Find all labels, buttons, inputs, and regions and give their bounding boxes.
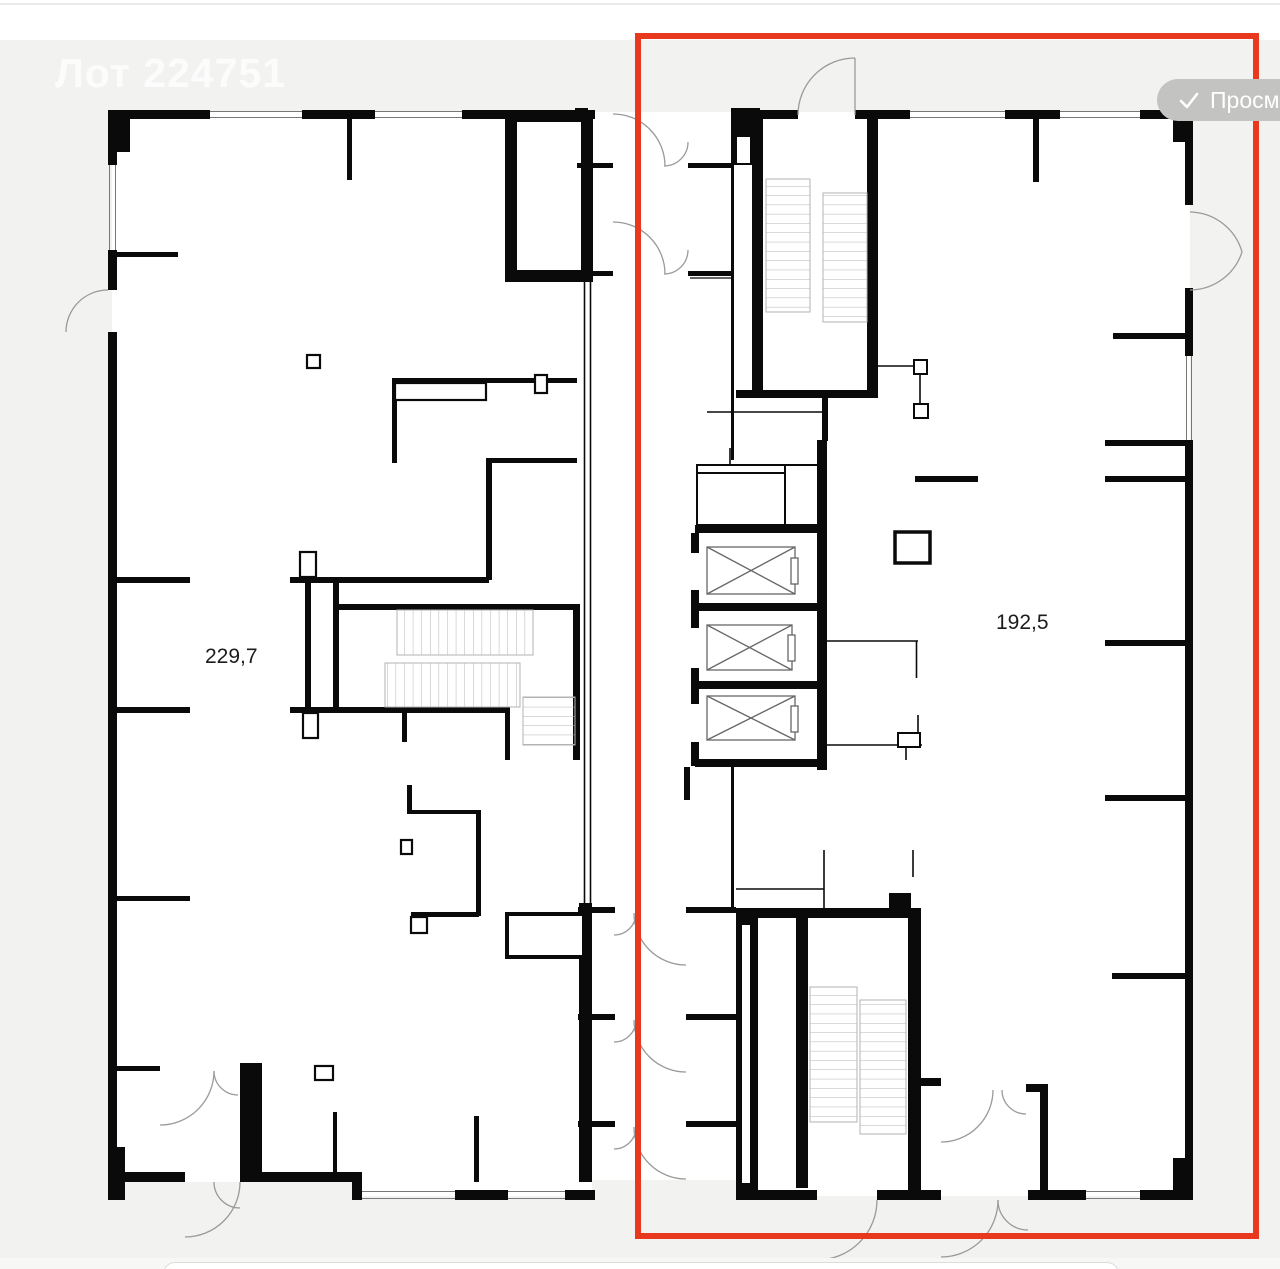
next-card-edge[interactable] xyxy=(163,1262,1119,1269)
checkmark-icon xyxy=(1177,88,1201,112)
viewed-badge-label: Просмотрено xyxy=(1210,87,1280,114)
lot-watermark: Лот 224751 xyxy=(55,50,286,97)
left-unit-area-label: 229,7 xyxy=(205,645,258,668)
right-unit-area-label: 192,5 xyxy=(996,611,1049,634)
listing-floorplan-viewer: 229,7 192,5 Лот 224751 Просмотрено xyxy=(0,0,1280,1269)
viewed-badge[interactable]: Просмотрено xyxy=(1157,79,1280,121)
floor-plan-image[interactable]: 229,7 192,5 xyxy=(0,0,1280,1269)
floor-field xyxy=(108,112,1190,1202)
